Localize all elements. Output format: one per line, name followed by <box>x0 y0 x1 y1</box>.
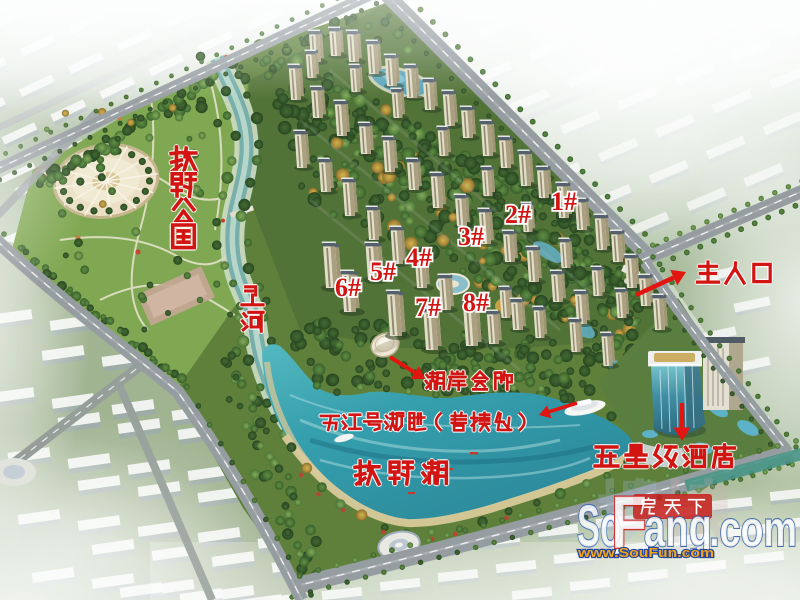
svg-text:2#: 2# <box>505 200 531 229</box>
svg-text:.com: .com <box>709 501 797 557</box>
svg-text:8#: 8# <box>463 288 489 317</box>
svg-text:7#: 7# <box>415 293 441 322</box>
svg-text:6#: 6# <box>335 273 361 302</box>
svg-text:4#: 4# <box>406 243 432 272</box>
svg-text:3#: 3# <box>458 222 484 251</box>
svg-text:1#: 1# <box>551 187 577 216</box>
svg-text:www.SouFun.com: www.SouFun.com <box>577 545 714 560</box>
svg-text:5#: 5# <box>370 257 396 286</box>
